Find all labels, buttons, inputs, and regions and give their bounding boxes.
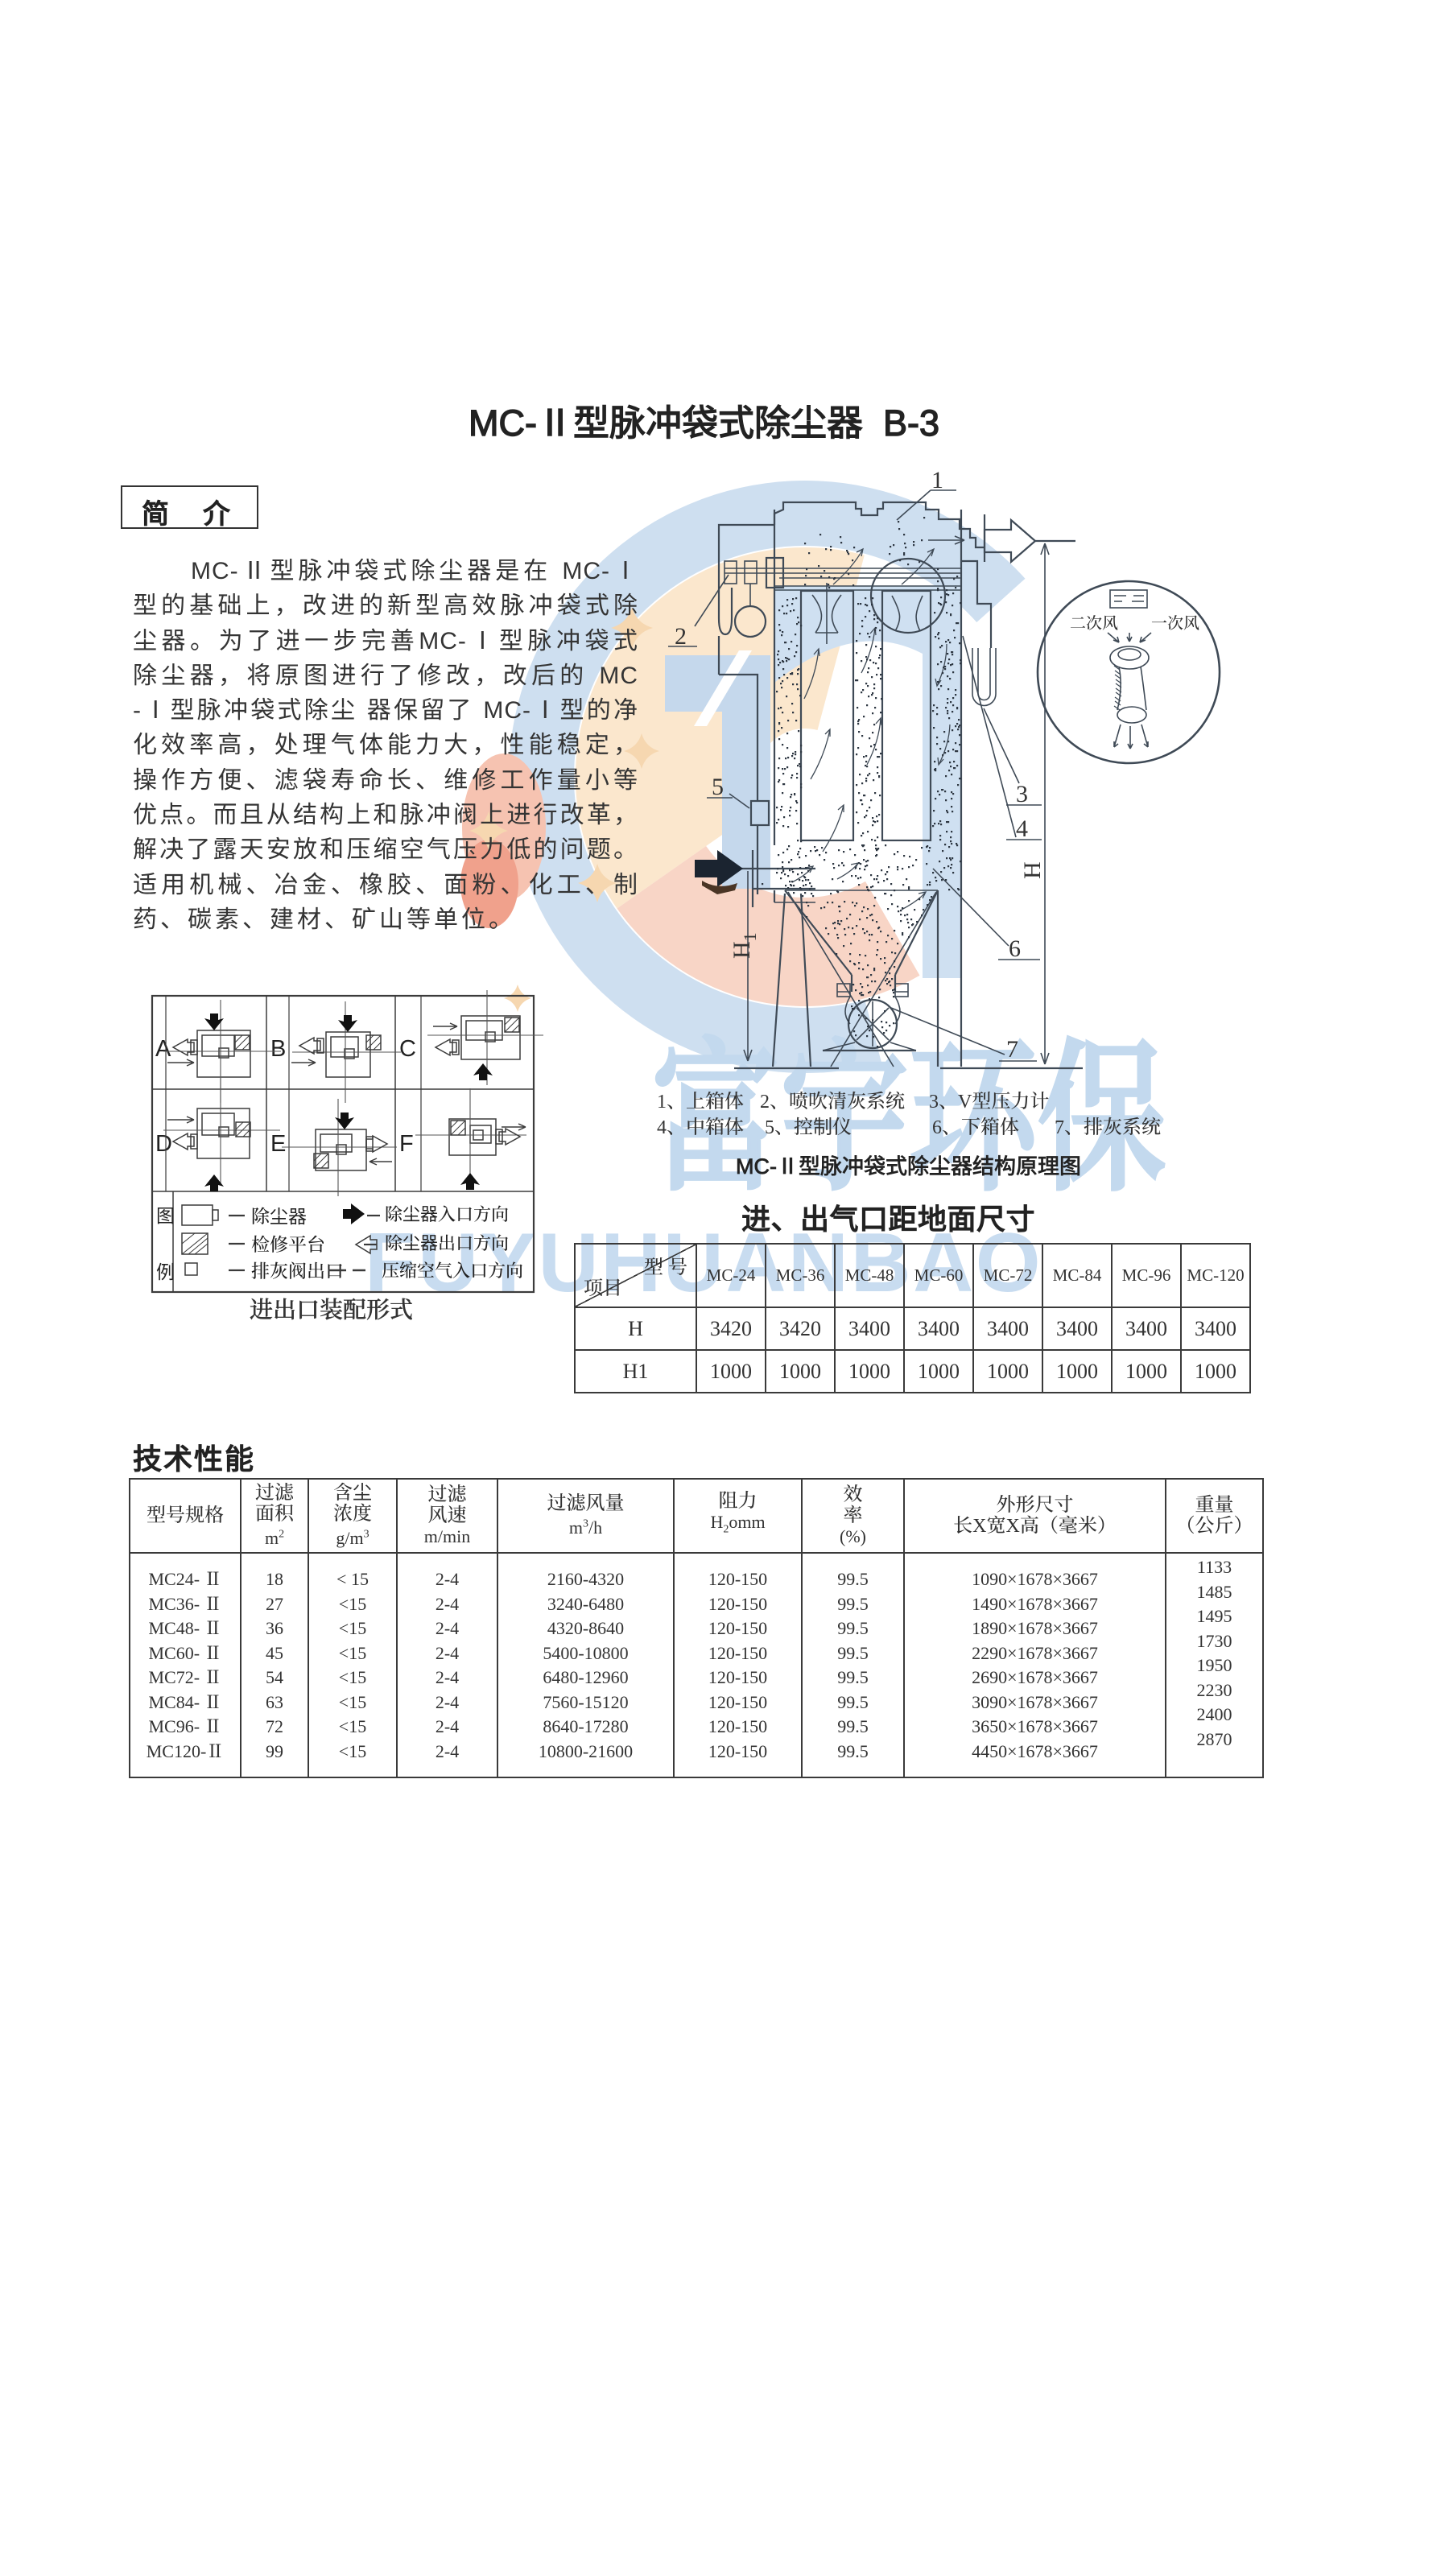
svg-text:图: 图	[156, 1201, 175, 1228]
svg-text:B: B	[270, 1036, 286, 1062]
svg-text:除尘器入口方向: 除尘器入口方向	[385, 1201, 509, 1226]
svg-text:4: 4	[1016, 815, 1028, 842]
svg-text:F: F	[399, 1131, 414, 1157]
svg-text:1: 1	[931, 467, 943, 493]
svg-text:C: C	[399, 1036, 416, 1062]
svg-text:一次风: 一次风	[1151, 610, 1199, 634]
svg-text:H1: H1	[729, 932, 760, 959]
svg-text:5: 5	[712, 774, 724, 800]
svg-text:除尘器: 除尘器	[251, 1202, 307, 1228]
svg-text:二次风: 二次风	[1070, 610, 1118, 634]
svg-text:3: 3	[1016, 781, 1028, 807]
svg-text:7: 7	[1006, 1036, 1018, 1063]
svg-text:A: A	[155, 1036, 171, 1062]
svg-text:6: 6	[1009, 935, 1021, 962]
svg-text:H: H	[1019, 861, 1046, 879]
svg-text:D: D	[155, 1131, 172, 1157]
svg-text:检修平台: 检修平台	[251, 1230, 325, 1257]
svg-text:压缩空气入口方向: 压缩空气入口方向	[382, 1257, 523, 1282]
svg-text:2: 2	[675, 623, 687, 650]
svg-text:除尘器出口方向: 除尘器出口方向	[385, 1230, 509, 1255]
svg-text:例: 例	[156, 1257, 175, 1284]
svg-text:E: E	[270, 1131, 286, 1157]
